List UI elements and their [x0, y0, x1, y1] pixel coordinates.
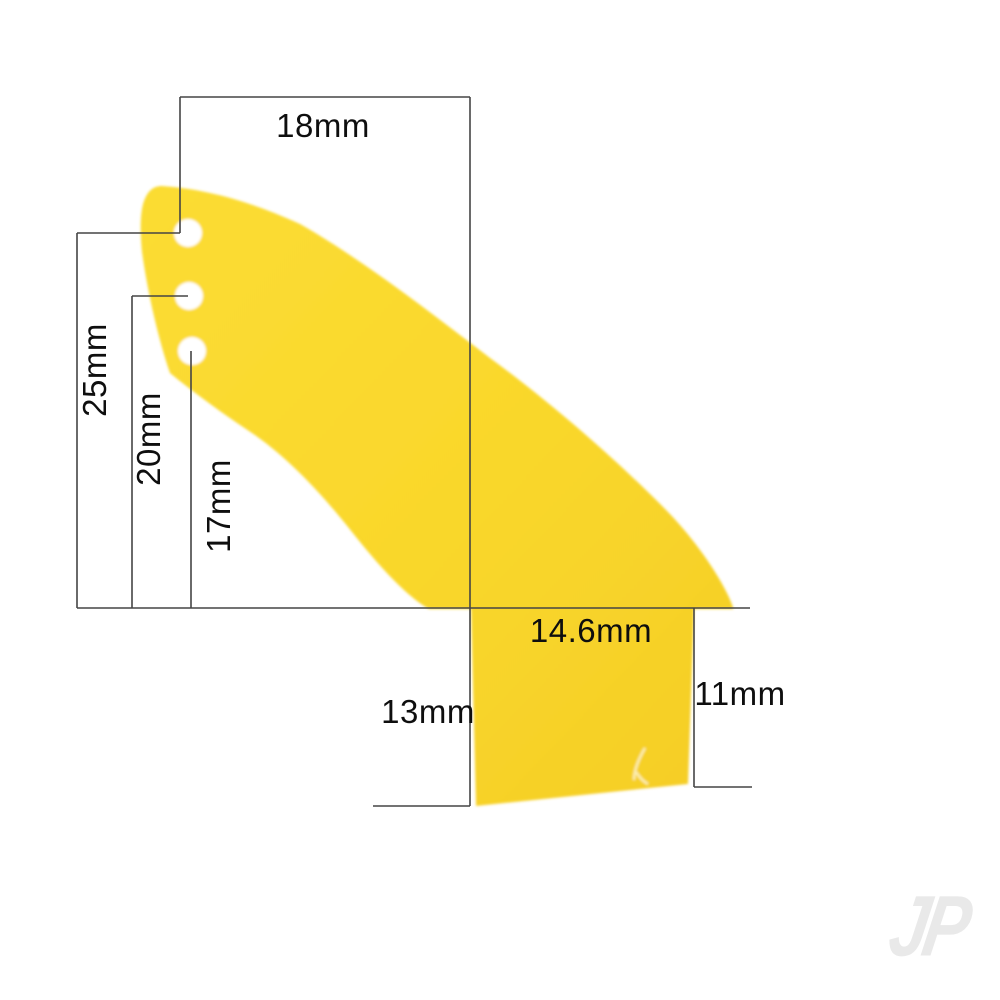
dim-label-17mm: 17mm [200, 459, 238, 553]
product-dimension-diagram: 18mm 25mm 20mm 17mm 14.6mm 13mm 11mm JP [0, 0, 1000, 1000]
dim-label-13mm: 13mm [381, 693, 475, 731]
dim-label-11mm: 11mm [694, 675, 785, 713]
control-horn-drawing [0, 0, 1000, 1000]
dim-label-18mm: 18mm [276, 107, 370, 145]
dim-label-25mm: 25mm [76, 323, 114, 417]
mounting-hole-3 [178, 337, 206, 365]
dim-label-14-6mm: 14.6mm [530, 612, 652, 650]
dim-label-20mm: 20mm [130, 392, 168, 486]
